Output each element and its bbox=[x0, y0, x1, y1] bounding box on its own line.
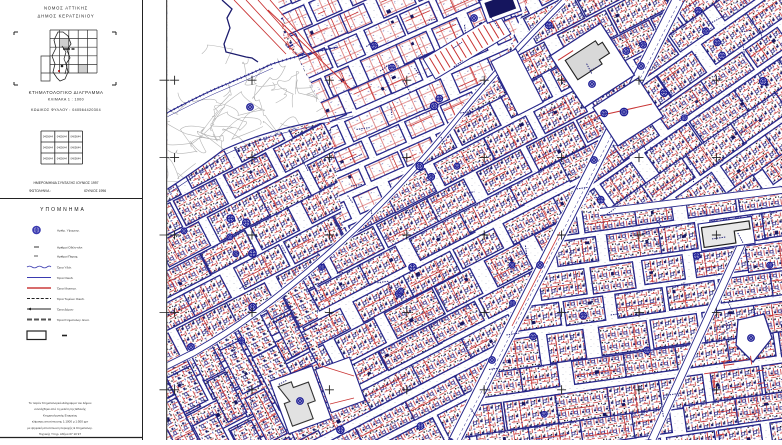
svg-text:Όρια Τομέων Οικοδ.: Όρια Τομέων Οικοδ. bbox=[56, 297, 85, 301]
svg-text:ΝΟΜΟΣ ΑΤΤΙΚΗΣ: ΝΟΜΟΣ ΑΤΤΙΚΗΣ bbox=[44, 6, 88, 11]
svg-text:0405644: 0405644 bbox=[43, 157, 54, 161]
svg-text:ΦΩΤΟΛΗΨΙΑ :: ΦΩΤΟΛΗΨΙΑ : bbox=[29, 189, 51, 193]
svg-text:συντάχθηκε από τη μελέτη της Ε: συντάχθηκε από τη μελέτη της Εθνικής bbox=[34, 407, 86, 411]
svg-text:Κτηματολογικής Εταιρείας: Κτηματολογικής Εταιρείας bbox=[43, 413, 78, 417]
svg-text:0405644: 0405644 bbox=[71, 135, 82, 139]
svg-text:Όρια Δήμου: Όρια Δήμου bbox=[56, 308, 74, 312]
svg-text:0405644: 0405644 bbox=[57, 135, 68, 139]
svg-text:ΚΛΙΜΑΚΑ 1 : 1000: ΚΛΙΜΑΚΑ 1 : 1000 bbox=[48, 98, 84, 102]
svg-text:Όρια Υδάτ.: Όρια Υδάτ. bbox=[56, 266, 72, 270]
svg-text:0405644: 0405644 bbox=[71, 146, 82, 150]
svg-text:0405644: 0405644 bbox=[43, 135, 54, 139]
svg-text:ΚΩΔΙΚΟΣ ΦΥΛΛΟΥ : 040564420304: ΚΩΔΙΚΟΣ ΦΥΛΛΟΥ : 040564420304 bbox=[31, 108, 101, 112]
svg-text:ΔΗΜΟΣ ΚΕΡΑΤΣΙΝΙΟΥ: ΔΗΜΟΣ ΚΕΡΑΤΣΙΝΙΟΥ bbox=[38, 14, 95, 19]
svg-text:Αριθμ. Υψομετρ.: Αριθμ. Υψομετρ. bbox=[57, 229, 80, 233]
svg-text:ΥΠΟΜΝΗΜΑ: ΥΠΟΜΝΗΜΑ bbox=[40, 207, 86, 213]
svg-text:Τεχνικής Υπηρ. Αθήνα 07 10 97: Τεχνικής Υπηρ. Αθήνα 07 10 97 bbox=[39, 432, 81, 436]
svg-text:ΗΜΕΡΟΜΗΝΙΑ ΣΥΝΤΑΞΗΣ ΙΟΥΝΙΟΣ 19: ΗΜΕΡΟΜΗΝΙΑ ΣΥΝΤΑΞΗΣ ΙΟΥΝΙΟΣ 1997 bbox=[33, 181, 98, 185]
svg-text:κλίμακας αποτύπωσης 1:1000 μ 1: κλίμακας αποτύπωσης 1:1000 μ 1:500 χρτ bbox=[32, 420, 89, 424]
svg-text:0405644: 0405644 bbox=[71, 157, 82, 161]
svg-text:0405644: 0405644 bbox=[57, 157, 68, 161]
svg-text:με ψηφιακή αποτύπωση περιοχής: με ψηφιακή αποτύπωση περιοχής & Κτηματολ… bbox=[27, 426, 92, 430]
svg-text:Όρια Κτηματολογ. Ενοτ.: Όρια Κτηματολογ. Ενοτ. bbox=[56, 318, 90, 322]
svg-text:0405644: 0405644 bbox=[57, 146, 68, 150]
svg-text:Όρια Οικοδ.: Όρια Οικοδ. bbox=[56, 276, 74, 280]
svg-text:Αριθμοί Παροχ.: Αριθμοί Παροχ. bbox=[57, 255, 78, 259]
svg-text:ΙΟΥΝΙΟΣ 1996: ΙΟΥΝΙΟΣ 1996 bbox=[84, 189, 106, 193]
svg-text:Το παρόν Κτηματολογικό Διάγραμ: Το παρόν Κτηματολογικό Διάγραμμα του Δήμ… bbox=[29, 401, 92, 405]
svg-text:Αριθμοί Οδών κλπ: Αριθμοί Οδών κλπ bbox=[57, 246, 82, 250]
svg-text:0405644: 0405644 bbox=[43, 146, 54, 150]
svg-text:ΚΤΗΜΑΤΟΛΟΓΙΚΟ ΔΙΑΓΡΑΜΜΑ: ΚΤΗΜΑΤΟΛΟΓΙΚΟ ΔΙΑΓΡΑΜΜΑ bbox=[29, 90, 104, 95]
svg-text:Όρια Ιδιοκτησ.: Όρια Ιδιοκτησ. bbox=[56, 287, 77, 291]
